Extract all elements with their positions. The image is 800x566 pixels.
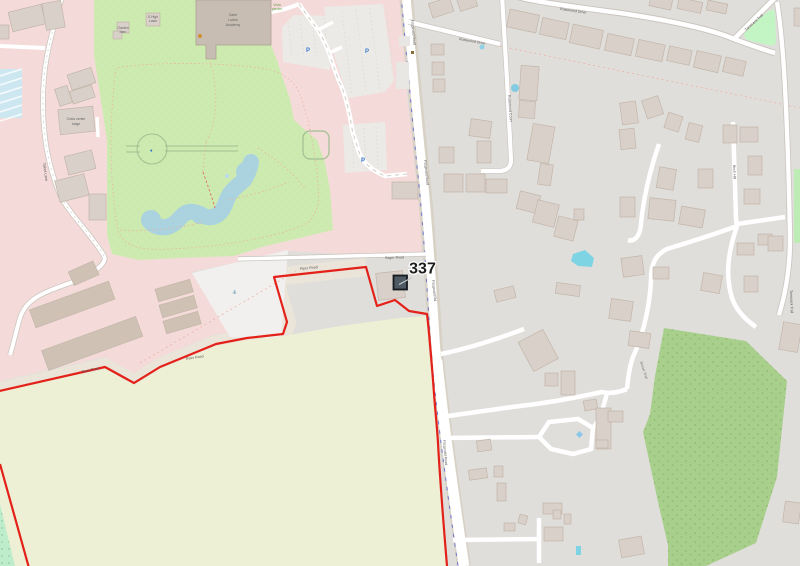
svg-text:lodge: lodge [72, 122, 80, 126]
svg-text:Birch Hill: Birch Hill [732, 165, 736, 180]
svg-text:barn: barn [120, 30, 127, 34]
svg-text:337: 337 [409, 261, 436, 278]
svg-text:Lukes: Lukes [228, 18, 238, 22]
svg-text:Academy: Academy [226, 23, 241, 27]
svg-text:P: P [361, 158, 365, 164]
svg-text:Saint: Saint [229, 13, 237, 17]
svg-text:P: P [306, 48, 310, 54]
svg-text:♦: ♦ [150, 148, 153, 154]
svg-text:Lawn: Lawn [149, 19, 157, 23]
svg-text:P: P [365, 49, 369, 55]
svg-text:Crisis center: Crisis center [67, 117, 87, 121]
svg-text:garden: garden [272, 7, 283, 11]
svg-text:⛲: ⛲ [232, 289, 237, 294]
svg-text:Sager Road: Sager Road [385, 255, 404, 260]
svg-text:Tamarack Trail: Tamarack Trail [789, 290, 794, 314]
